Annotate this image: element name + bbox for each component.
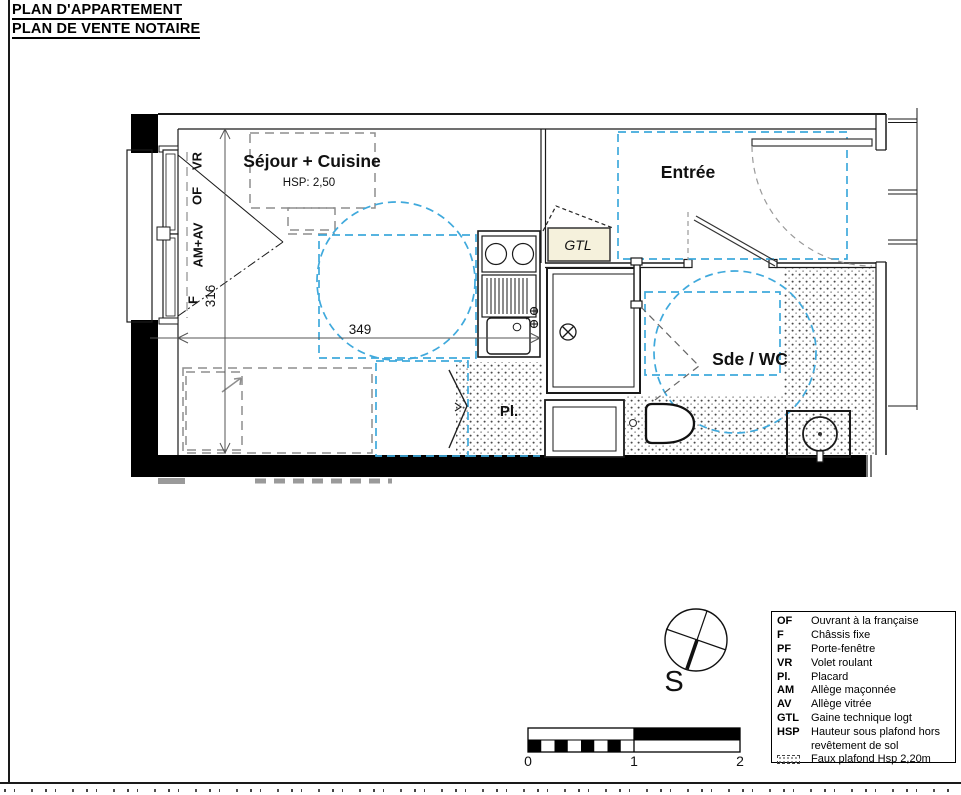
room-label-gtl: GTL (564, 237, 591, 253)
legend-key: PF (777, 644, 811, 655)
shower-door-swing (641, 307, 699, 366)
room-label-sde-wc: Sde / WC (712, 349, 788, 369)
legend-row: VRVolet roulant (777, 656, 955, 670)
legend-key: VR (777, 658, 811, 669)
faux-plafond-swatch (777, 755, 800, 764)
window-label-vr: VR (190, 151, 205, 170)
compass (665, 609, 727, 671)
shower-door (634, 262, 640, 306)
legend-row: Pl.Placard (777, 670, 955, 684)
dimension-height: 316 (203, 285, 218, 308)
legend-key: AM (777, 685, 811, 696)
legend-desc: Allège vitrée (811, 699, 955, 710)
scale-tick-1: 1 (630, 753, 638, 769)
legend-desc: revêtement de sol (811, 741, 955, 752)
legend-key: AV (777, 699, 811, 710)
legend-desc: Ouvrant à la française (811, 616, 955, 627)
legend-desc: Faux plafond Hsp 2,20m (811, 754, 955, 765)
room-label-sejour: Séjour + Cuisine (243, 151, 381, 171)
legend-row: OFOuvrant à la française (777, 615, 955, 629)
scale-tick-0: 0 (524, 753, 532, 769)
entry-door-leaf (752, 139, 872, 146)
dimension-width: 349 (349, 322, 372, 337)
legend-row: GTLGaine technique logt (777, 712, 955, 726)
legend-key: HSP (777, 727, 811, 738)
shower (547, 258, 642, 393)
legend-row: HSPHauteur sous plafond hors (777, 725, 955, 739)
legend-row-swatch: Faux plafond Hsp 2,20m (777, 753, 955, 767)
room-label-placard: Pl. (500, 403, 518, 420)
legend-row: revêtement de sol (777, 739, 955, 753)
drawing-sheet: PLAN D'APPARTEMENT PLAN DE VENTE NOTAIRE (0, 0, 961, 795)
legend-desc: Allège maçonnée (811, 685, 955, 696)
legend-desc: Gaine technique logt (811, 713, 955, 724)
vanity-cabinet (545, 400, 624, 457)
wc-door-leaf (696, 216, 777, 262)
legend-box: OFOuvrant à la française FChâssis fixe P… (771, 611, 956, 763)
legend-key: OF (777, 616, 811, 627)
legend-desc: Porte-fenêtre (811, 644, 955, 655)
scale-bar (528, 728, 740, 752)
legend-row: AVAllège vitrée (777, 698, 955, 712)
window-label-of: OF (190, 187, 205, 205)
legend-key: GTL (777, 713, 811, 724)
room-label-entree: Entrée (661, 162, 716, 182)
legend-desc: Hauteur sous plafond hors (811, 727, 955, 738)
legend-row: AMAllège maçonnée (777, 684, 955, 698)
legend-key: Pl. (777, 672, 811, 683)
legend-desc: Volet roulant (811, 658, 955, 669)
room-hsp-sejour: HSP: 2,50 (283, 177, 335, 189)
legend-desc: Placard (811, 672, 955, 683)
legend-desc: Châssis fixe (811, 630, 955, 641)
toilet (646, 404, 694, 443)
window-label-f: F (186, 296, 201, 304)
legend-row: PFPorte-fenêtre (777, 643, 955, 657)
compass-south-label: S (664, 666, 683, 698)
entry-door-swing (752, 146, 872, 266)
legend-row: FChâssis fixe (777, 629, 955, 643)
scale-tick-2: 2 (736, 753, 744, 769)
legend-key: F (777, 630, 811, 641)
window-label-am-av: AM+AV (191, 222, 206, 267)
